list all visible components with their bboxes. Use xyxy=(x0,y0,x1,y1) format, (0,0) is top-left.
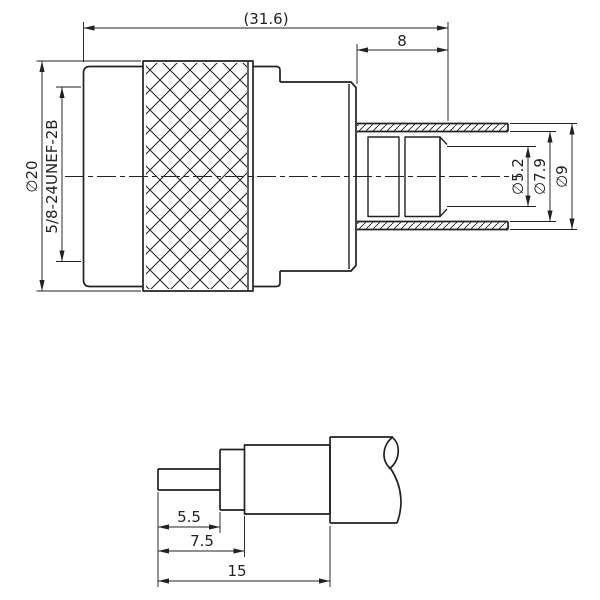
center-conductor-outline xyxy=(158,469,220,490)
cable-jacket-outline xyxy=(330,437,401,523)
dim-knurl-diameter: ∅20 xyxy=(23,61,141,291)
dim-overall-length-label: (31.6) xyxy=(243,10,288,28)
dim-strip-length: 15 xyxy=(158,526,330,587)
dielectric-outline xyxy=(220,450,245,511)
dim-knurl-diameter-label: ∅20 xyxy=(23,160,41,192)
prepared-cable-view: 5.5 7.5 15 xyxy=(158,437,401,587)
dim-dielectric-length-label: 7.5 xyxy=(190,532,214,550)
dim-bore-diameter-label: ∅5.2 xyxy=(509,158,527,195)
dim-sleeve-length-label: 8 xyxy=(397,32,407,50)
dim-sleeve-inner-diameter-label: ∅7.9 xyxy=(531,158,549,195)
dim-sleeve-outer-diameter-label: ∅9 xyxy=(553,165,571,188)
connector-technical-drawing: (31.6) 8 ∅20 5/8-24UNEF-2B ∅5.2 xyxy=(0,0,600,600)
dim-dielectric-length: 7.5 xyxy=(158,516,245,557)
dim-strip-length-label: 15 xyxy=(227,562,246,580)
dim-overall-length: (31.6) xyxy=(84,10,449,121)
dim-sleeve-length: 8 xyxy=(357,32,448,84)
connector-side-view: (31.6) 8 ∅20 5/8-24UNEF-2B ∅5.2 xyxy=(23,10,577,291)
braid-section xyxy=(245,445,331,514)
dim-thread-spec-label: 5/8-24UNEF-2B xyxy=(43,119,61,233)
dim-pin-length-label: 5.5 xyxy=(177,508,201,526)
dim-bore-diameter: ∅5.2 xyxy=(509,147,528,207)
dim-thread-spec: 5/8-24UNEF-2B xyxy=(43,87,81,262)
coupling-nut-knurl xyxy=(143,61,253,291)
